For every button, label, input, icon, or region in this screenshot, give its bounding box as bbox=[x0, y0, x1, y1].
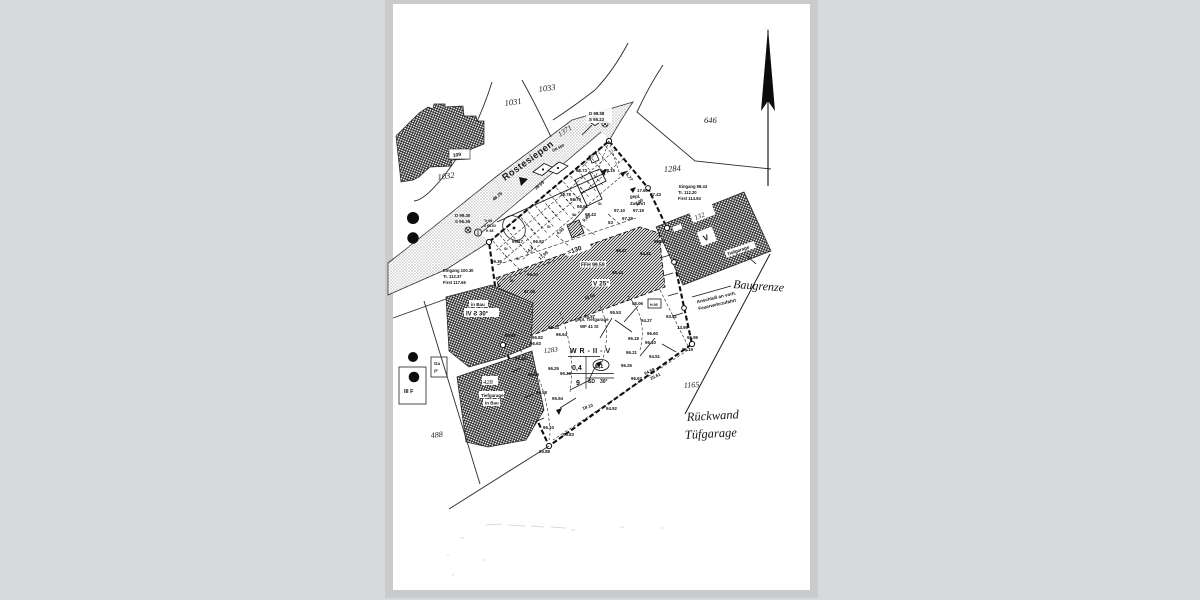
svg-text:K 68: K 68 bbox=[486, 229, 493, 233]
svg-text:Rückwand: Rückwand bbox=[685, 407, 739, 424]
svg-text:97.29: 97.29 bbox=[622, 216, 634, 221]
svg-text:97.19: 97.19 bbox=[633, 208, 645, 213]
svg-text:94.51: 94.51 bbox=[649, 354, 661, 359]
svg-text:0,4: 0,4 bbox=[572, 365, 582, 372]
svg-text:19.78: 19.78 bbox=[560, 192, 572, 197]
svg-text:488: 488 bbox=[430, 430, 443, 440]
svg-text:98.79: 98.79 bbox=[570, 197, 582, 202]
svg-text:1284: 1284 bbox=[663, 163, 681, 174]
svg-text:646: 646 bbox=[704, 115, 718, 125]
svg-text:III F: III F bbox=[404, 389, 414, 395]
svg-text:96.25: 96.25 bbox=[548, 366, 560, 371]
svg-text:D 99.30: D 99.30 bbox=[455, 213, 471, 218]
svg-text:95.06: 95.06 bbox=[632, 301, 644, 306]
svg-text:First 114.94: First 114.94 bbox=[678, 196, 701, 201]
svg-text:97.00: 97.00 bbox=[524, 289, 536, 294]
svg-text:428: 428 bbox=[483, 379, 494, 386]
svg-text:First 117.66: First 117.66 bbox=[443, 280, 466, 285]
svg-text:96.64: 96.64 bbox=[556, 332, 568, 337]
svg-text:98.15: 98.15 bbox=[604, 168, 616, 173]
svg-text:95.53: 95.53 bbox=[610, 310, 622, 315]
svg-text:96.19: 96.19 bbox=[682, 347, 694, 352]
svg-text:98.61: 98.61 bbox=[577, 204, 589, 209]
svg-text:97.10: 97.10 bbox=[614, 208, 626, 213]
svg-text:96.85: 96.85 bbox=[505, 333, 517, 338]
svg-text:95.95: 95.95 bbox=[687, 335, 699, 340]
svg-text:53: 53 bbox=[608, 220, 613, 225]
svg-text:96.23: 96.23 bbox=[560, 371, 572, 376]
svg-text:96.82: 96.82 bbox=[532, 335, 544, 340]
svg-text:98.73: 98.73 bbox=[576, 168, 588, 173]
svg-text:99.36: 99.36 bbox=[491, 259, 503, 264]
svg-text:FFH 99.59: FFH 99.59 bbox=[581, 263, 605, 269]
svg-text:95.43: 95.43 bbox=[612, 270, 624, 275]
svg-text:96.10: 96.10 bbox=[543, 425, 555, 430]
svg-text:96.67: 96.67 bbox=[631, 376, 643, 381]
svg-text:96.27: 96.27 bbox=[616, 248, 628, 253]
svg-text:Tiefgarage: Tiefgarage bbox=[481, 393, 504, 398]
svg-text:Tüfgarage: Tüfgarage bbox=[684, 425, 737, 442]
svg-text:IV Ƨ 30°: IV Ƨ 30° bbox=[466, 312, 489, 318]
svg-text:1165: 1165 bbox=[684, 380, 700, 390]
svg-text:Tr. 112.37: Tr. 112.37 bbox=[443, 274, 462, 279]
svg-text:96.60: 96.60 bbox=[647, 331, 659, 336]
svg-text:96.21: 96.21 bbox=[626, 350, 638, 355]
svg-text:96.58: 96.58 bbox=[536, 390, 548, 395]
svg-text:Tr 68: Tr 68 bbox=[484, 219, 492, 223]
svg-text:96.43: 96.43 bbox=[515, 356, 527, 361]
svg-text:Tr. 112.20: Tr. 112.20 bbox=[678, 190, 697, 195]
svg-text:D 98.58: D 98.58 bbox=[589, 111, 605, 116]
svg-text:Eingang 100.30: Eingang 100.30 bbox=[443, 268, 474, 273]
svg-text:95.57: 95.57 bbox=[584, 314, 596, 319]
svg-text:S 95.22: S 95.22 bbox=[589, 117, 605, 122]
svg-text:WF 41 St: WF 41 St bbox=[580, 324, 599, 329]
svg-text:S 96.35: S 96.35 bbox=[455, 219, 471, 224]
svg-text:96.18: 96.18 bbox=[628, 336, 640, 341]
svg-text:1283: 1283 bbox=[543, 346, 558, 355]
svg-text:94.27: 94.27 bbox=[641, 318, 653, 323]
svg-text:96.63: 96.63 bbox=[530, 341, 542, 346]
svg-text:99.20: 99.20 bbox=[527, 272, 539, 277]
svg-text:96.80: 96.80 bbox=[654, 239, 666, 244]
svg-text:96.44: 96.44 bbox=[548, 325, 560, 330]
svg-text:94.21: 94.21 bbox=[640, 251, 652, 256]
svg-text:in Bau: in Bau bbox=[471, 302, 485, 307]
svg-text:H.95: H.95 bbox=[650, 303, 658, 307]
svg-text:in Bau: in Bau bbox=[485, 401, 499, 406]
svg-text:96.26: 96.26 bbox=[621, 363, 633, 368]
svg-text:(F: (F bbox=[434, 368, 438, 373]
svg-text:94.92: 94.92 bbox=[606, 406, 618, 411]
svg-text:V 25°: V 25° bbox=[593, 280, 609, 288]
svg-text:96.93: 96.93 bbox=[533, 239, 545, 244]
svg-text:30°: 30° bbox=[600, 379, 608, 385]
svg-text:17.60: 17.60 bbox=[637, 188, 649, 193]
svg-text:Eingang 98.43: Eingang 98.43 bbox=[679, 184, 708, 189]
svg-text:Ga: Ga bbox=[434, 361, 441, 366]
svg-text:95.94: 95.94 bbox=[552, 396, 564, 401]
svg-text:0 68-63: 0 68-63 bbox=[484, 224, 496, 228]
svg-text:97.43: 97.43 bbox=[650, 192, 662, 197]
svg-text:109: 109 bbox=[452, 152, 461, 159]
svg-text:95.83: 95.83 bbox=[563, 432, 575, 437]
svg-text:99.17: 99.17 bbox=[512, 239, 524, 244]
